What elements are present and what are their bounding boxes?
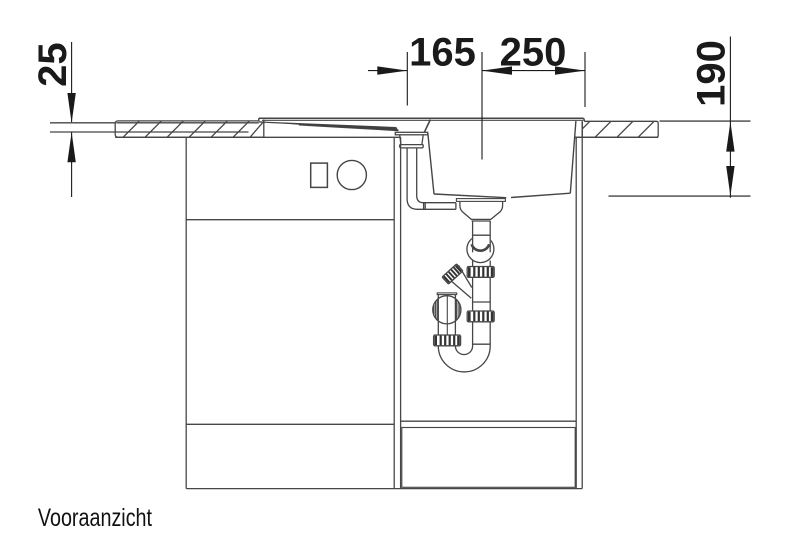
svg-text:165: 165 (409, 31, 476, 75)
svg-text:25: 25 (31, 42, 75, 87)
svg-text:Vooraanzicht: Vooraanzicht (38, 504, 153, 532)
svg-text:190: 190 (689, 40, 733, 107)
